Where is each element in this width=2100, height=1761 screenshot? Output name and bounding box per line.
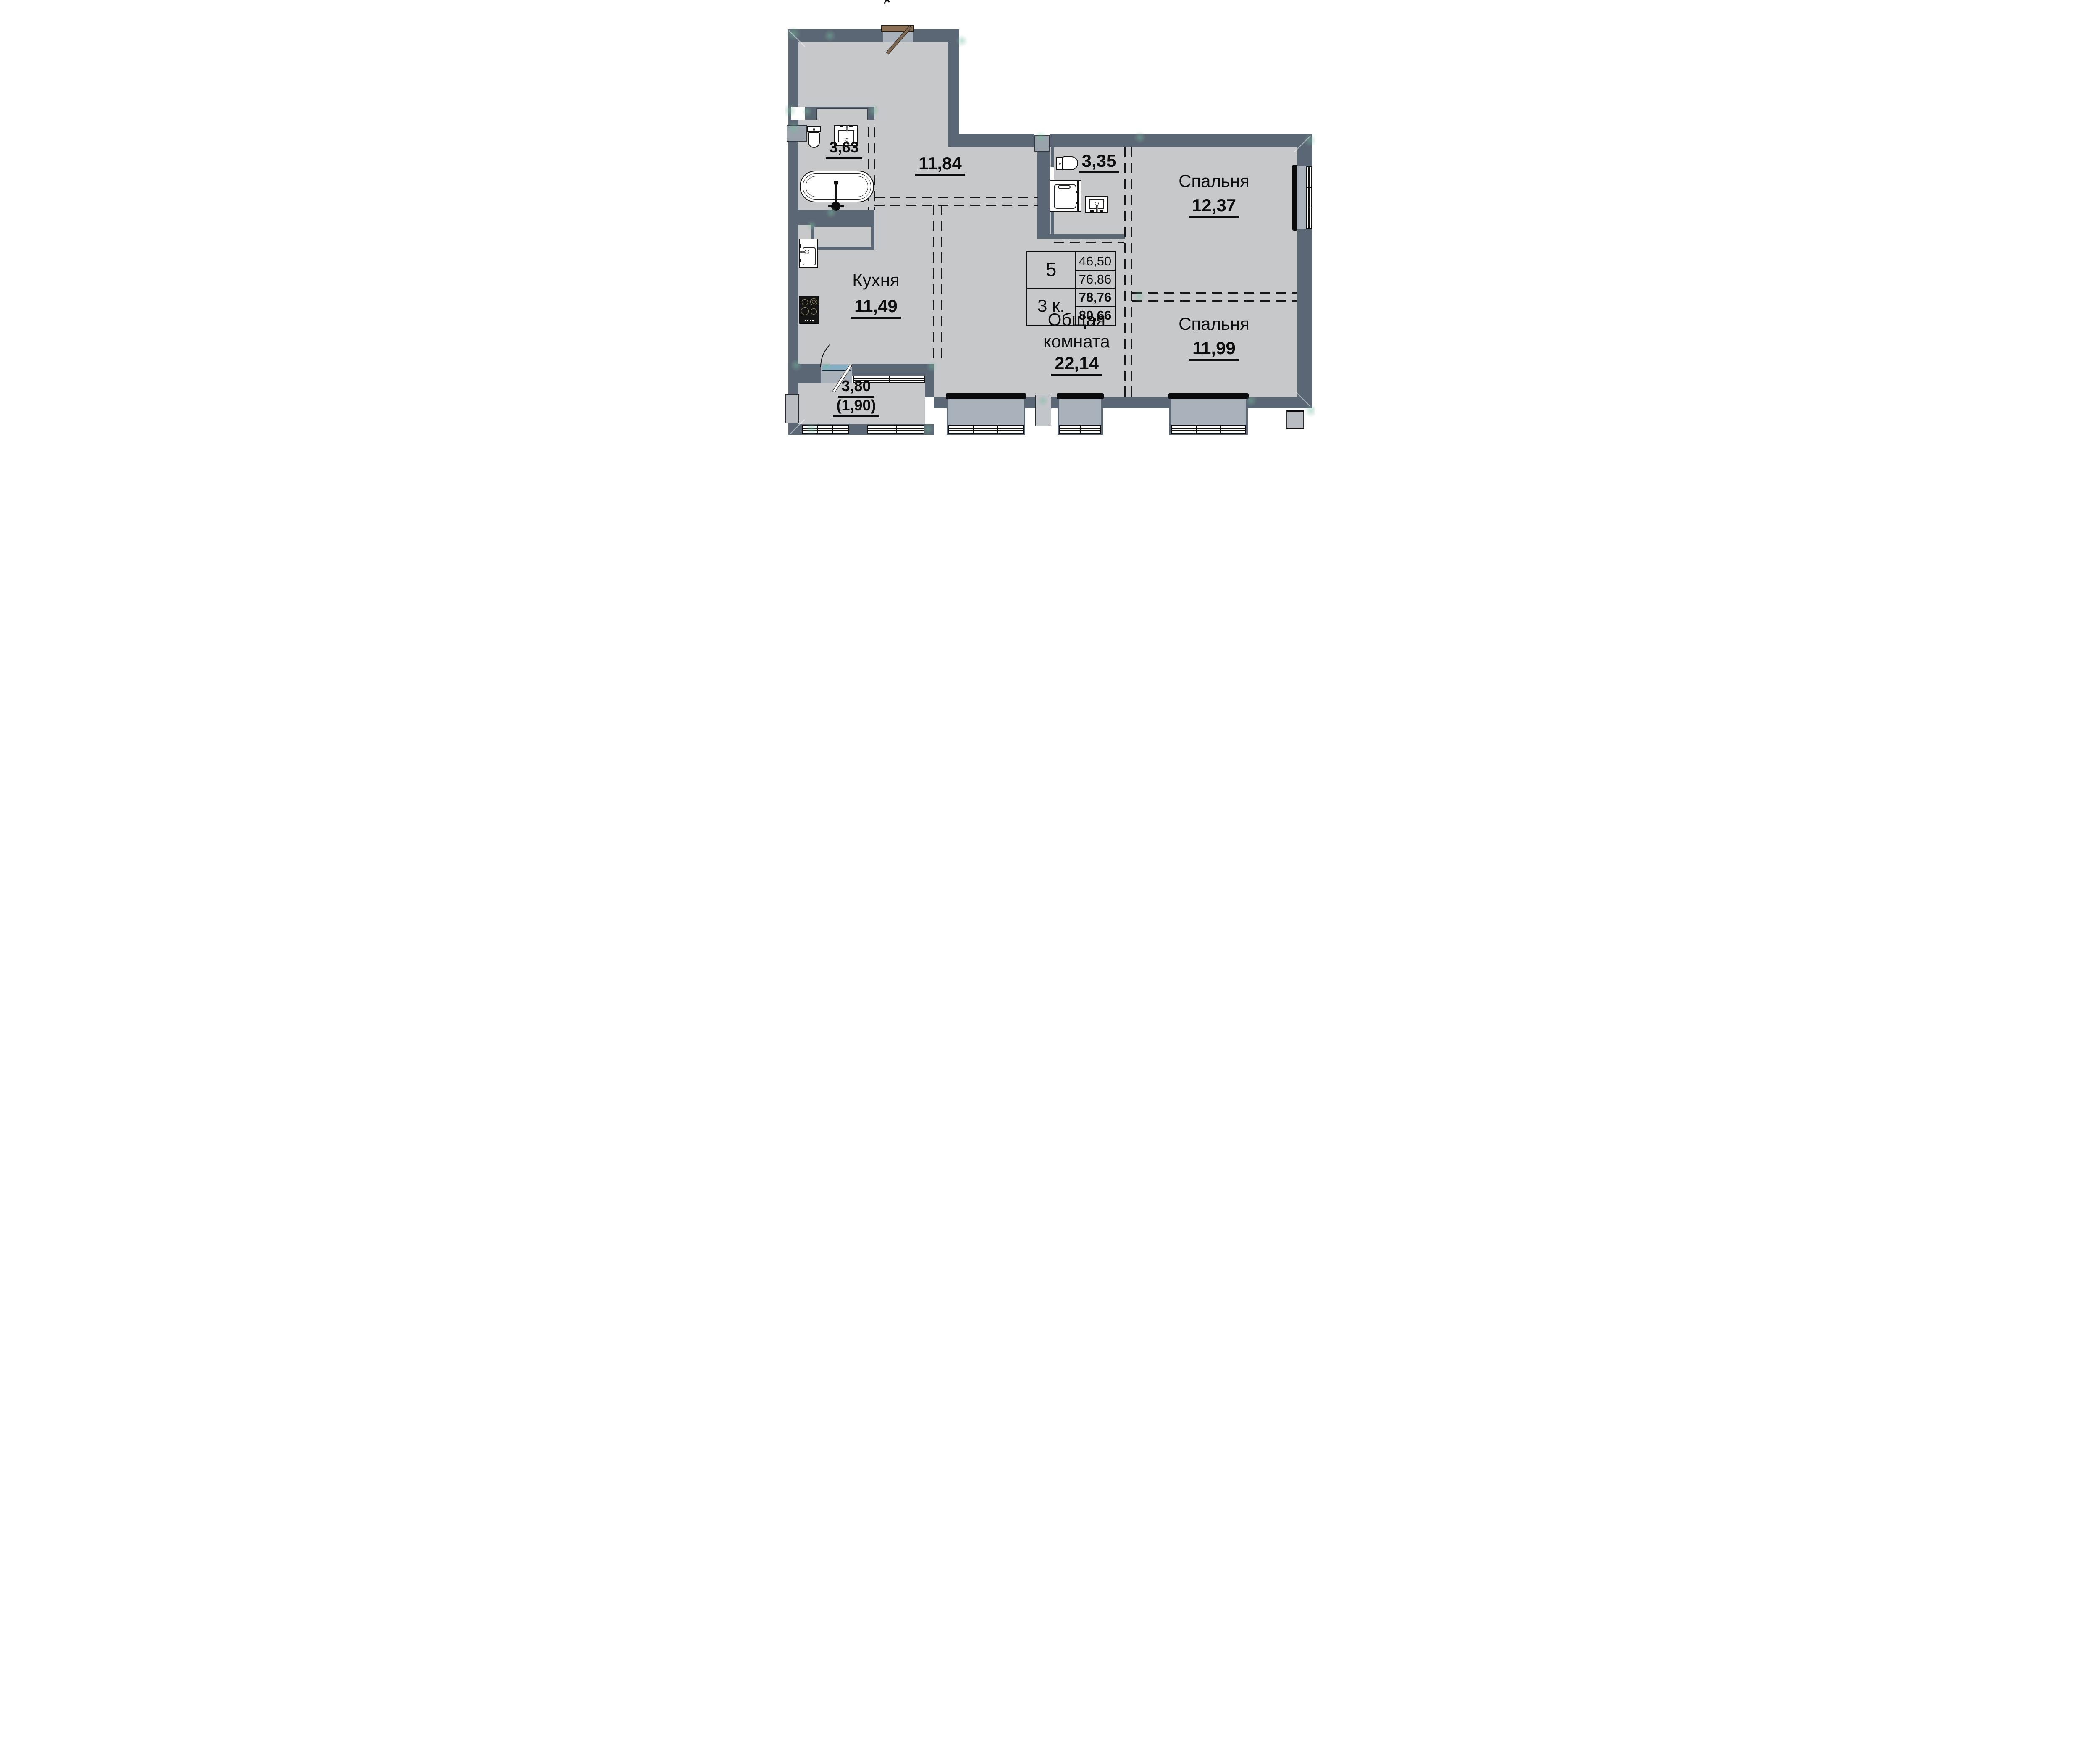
watermark: [1245, 395, 1257, 407]
bedroom2-window-lintel: [1168, 393, 1249, 399]
bedroom2-window: [1171, 425, 1246, 434]
table-hline-r1: [1076, 270, 1115, 271]
toilet-button: [813, 128, 815, 131]
bathtub-icon: [800, 171, 874, 202]
watermark: [790, 359, 803, 371]
wc-toilet-tank-icon: [1056, 157, 1063, 170]
watermark: [824, 29, 836, 42]
bedroom2-area-label: 11,99: [1183, 339, 1246, 361]
floor-plan: 3,63 11,84 3,35 Спальня 12,37 Кухня 11,4…: [785, 0, 1315, 440]
living-window-right: [1059, 425, 1101, 434]
wc-partition-gap-1: [1050, 167, 1054, 180]
wall-mid-top: [959, 134, 1034, 147]
watermark: [825, 207, 837, 218]
area-no-balcony-cell: 76,86: [1076, 272, 1115, 287]
wall-wc-bottom: [1046, 234, 1125, 239]
window-recess: [948, 399, 1024, 425]
watermark: [867, 104, 880, 117]
watermark: [806, 220, 817, 231]
living-name-line2: комната: [1031, 332, 1123, 351]
shower-cabin-icon: [1050, 180, 1081, 212]
kitchen-name-label: Кухня: [843, 271, 910, 289]
table-hline-mid: [1027, 288, 1115, 289]
living-window-left-lintel: [946, 393, 1026, 399]
bathroom-area-label: 3,63: [817, 139, 871, 159]
living-area-label: 22,14: [1045, 354, 1108, 376]
apartment-info-table: 5 3 к. 46,50 76,86 78,76 80,66: [1026, 251, 1116, 326]
watermark: [926, 360, 938, 372]
watermark: [787, 121, 801, 135]
watermark: [786, 26, 801, 41]
bathroom-wall-niche: [816, 108, 868, 120]
living-window-left: [948, 425, 1024, 434]
stove-icon: [799, 296, 819, 324]
bedroom1-window: [1306, 166, 1312, 229]
watermark: [955, 34, 968, 47]
dash-below-wc: [1054, 242, 1124, 243]
wc-area-label: 3,35: [1068, 151, 1131, 173]
dash-bedrooms-left-2: [1131, 147, 1132, 397]
balcony-side-block: [785, 394, 799, 423]
ac-unit-block: [1286, 410, 1304, 429]
balcony-area-label: 3,80: [831, 378, 882, 398]
wall-entry-right: [948, 29, 959, 147]
window-bay-living-left: [947, 396, 1025, 435]
entrance-door-handle: [883, 0, 891, 7]
kitchen-area-label: 11,49: [845, 297, 908, 319]
window-recess: [1059, 399, 1101, 425]
window-pane-divider: [889, 376, 890, 382]
watermark: [1133, 290, 1145, 302]
watermark: [821, 360, 832, 371]
table-hline-r3: [1076, 306, 1115, 307]
apartment-number-cell: 5: [1027, 258, 1075, 281]
wall-balcony-band-mid: [852, 364, 926, 376]
wall-left: [788, 29, 798, 435]
bedroom2-name-label: Спальня: [1168, 314, 1260, 333]
wall-wc-left: [1037, 147, 1050, 239]
dash-bedroom-divider-1: [1132, 292, 1297, 294]
area-project-cell: 78,76: [1076, 290, 1115, 305]
dash-bedrooms-left-1: [1124, 147, 1126, 397]
hallway-area-label: 11,84: [907, 154, 974, 176]
window-bay-bedroom2: [1169, 396, 1248, 435]
wall-top: [788, 29, 959, 42]
dash-kitchen-living-2: [941, 205, 942, 364]
living-area-cell: 46,50: [1076, 254, 1115, 269]
wc-sink-icon: [1085, 196, 1108, 213]
dash-hallway-living-2: [874, 205, 1038, 206]
watermark: [1034, 131, 1047, 144]
living-window-right-lintel: [1057, 393, 1104, 399]
dash-kitchen-living-1: [933, 205, 934, 364]
bedroom1-name-label: Спальня: [1168, 171, 1260, 190]
bedroom1-window-recess: [1297, 166, 1307, 229]
kitchen-sink-icon: [799, 239, 818, 268]
rooms-count-cell: 3 к.: [1027, 296, 1075, 316]
window-bay-living-right: [1058, 396, 1103, 435]
dash-hallway-living-1: [874, 197, 1038, 198]
area-total-cell: 80,66: [1076, 308, 1115, 323]
bedroom1-area-label: 12,37: [1183, 196, 1246, 218]
balcony-window-right: [867, 425, 924, 434]
dash-bathroom-right-2: [874, 127, 875, 210]
kitchen-duct-niche: [811, 224, 874, 250]
watermark: [1134, 131, 1146, 144]
watermark: [802, 106, 813, 117]
watermark: [1037, 395, 1049, 407]
watermark: [805, 423, 818, 435]
bedroom1-window-lintel: [1292, 165, 1297, 231]
balcony-area-reduced-label: (1,90): [825, 397, 888, 417]
wall-rightsection-top: [1050, 134, 1312, 147]
dash-bedroom-divider-2: [1132, 300, 1297, 302]
window-recess: [1171, 399, 1246, 425]
watermark: [922, 423, 934, 435]
